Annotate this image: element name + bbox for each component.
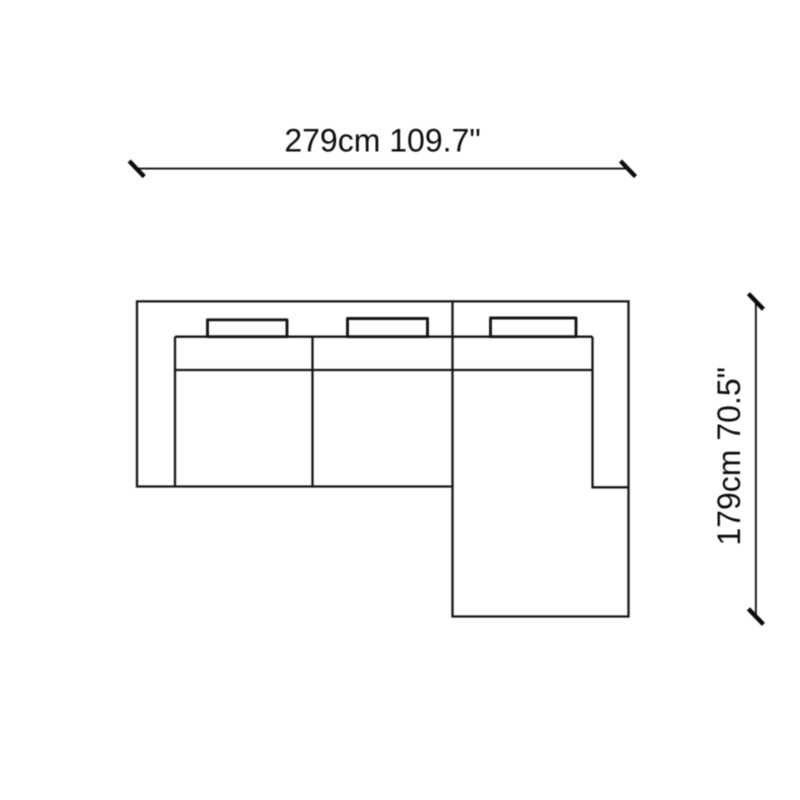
svg-text:279cm 109.7": 279cm 109.7" bbox=[284, 123, 480, 159]
svg-text:179cm 70.5": 179cm 70.5" bbox=[711, 367, 747, 546]
